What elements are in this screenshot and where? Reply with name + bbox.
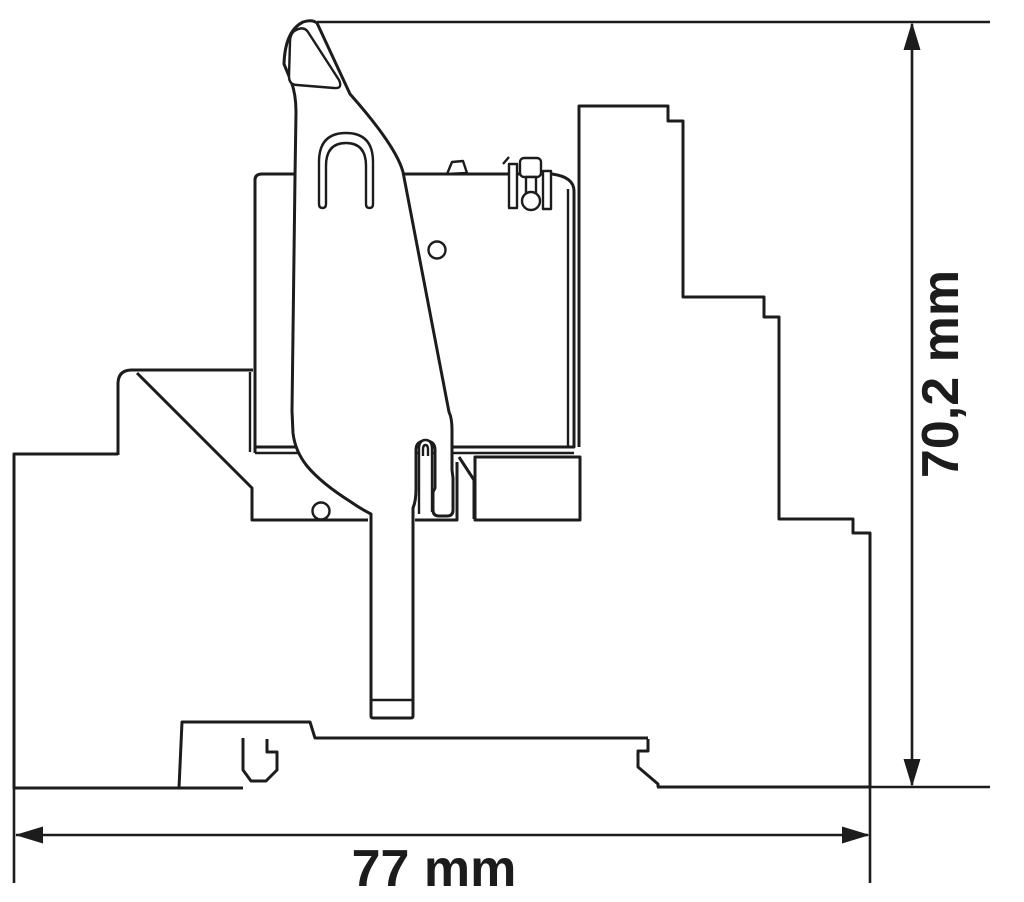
right-housing-profile (579, 106, 870, 787)
latch-post-outline (419, 440, 432, 514)
width-dimension-label: 77 mm (352, 840, 517, 898)
height-dimension-label: 70,2 mm (912, 270, 970, 478)
height-arrow-up (904, 22, 921, 50)
height-arrow-down (904, 759, 921, 787)
small-tick (503, 157, 509, 164)
release-lever-outline (284, 21, 453, 718)
relay-side-view-drawing: 70,2 mm 77 mm (0, 0, 1024, 902)
actuator-ball (522, 192, 540, 210)
pin-bar-left (509, 164, 517, 208)
release-lever (284, 21, 453, 718)
terminal-block (475, 457, 580, 520)
rail-clip-pawl (243, 738, 277, 781)
vent-tab (447, 161, 467, 174)
width-dimension: 77 mm (14, 787, 870, 898)
width-arrow-right (842, 827, 870, 844)
actuator-cap (520, 158, 541, 177)
relay-indicator-hole (429, 242, 446, 259)
width-arrow-left (15, 827, 43, 844)
din-rail-foot (179, 722, 658, 788)
latch-post (419, 440, 432, 514)
top-details (447, 157, 551, 210)
socket-indicator-hole (313, 503, 330, 520)
dimensional-drawing-canvas: 70,2 mm 77 mm (0, 0, 1024, 902)
socket-wedge (118, 370, 253, 455)
socket-pocket-chamfer (459, 457, 474, 519)
rail-guide-right (638, 739, 658, 787)
stepped-right-outline (579, 106, 870, 787)
socket-left-outline (14, 454, 243, 788)
pin-bar-right (543, 171, 551, 209)
